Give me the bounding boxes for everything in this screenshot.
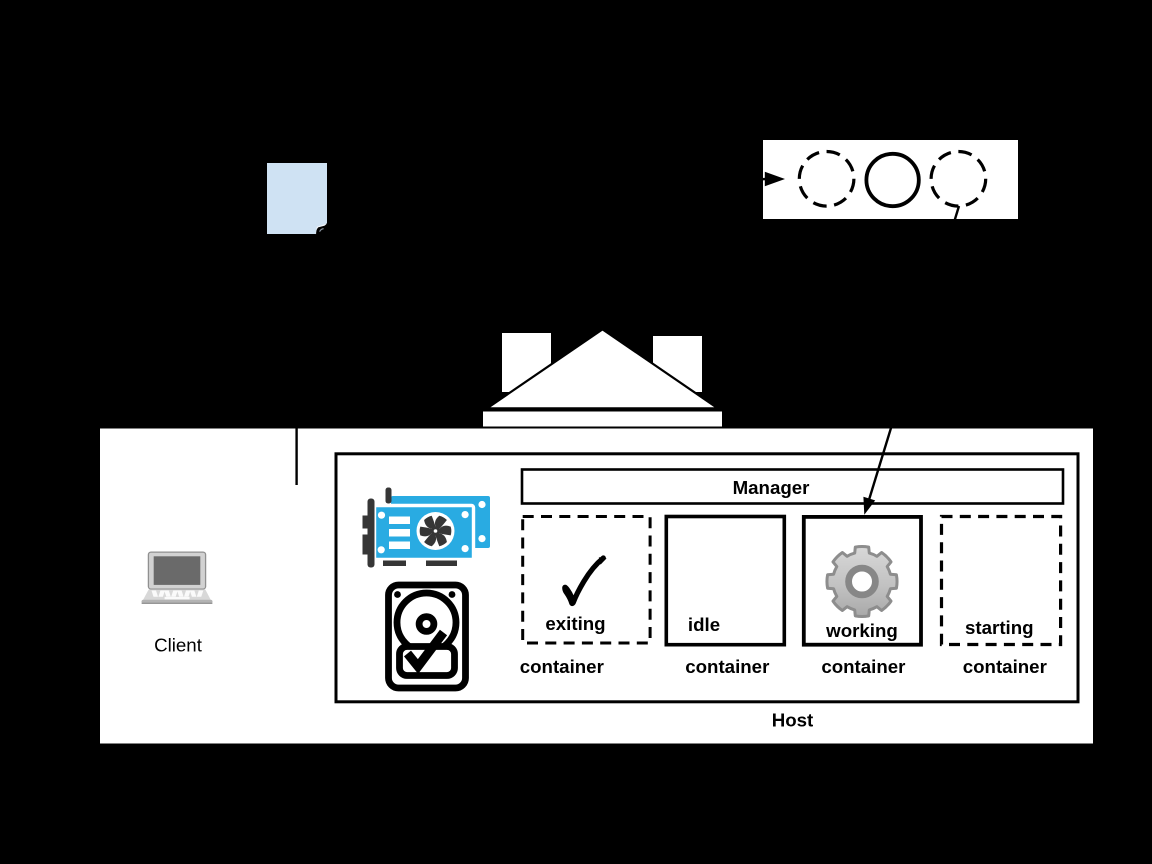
svg-text:container: container [821, 656, 905, 677]
svg-text:container: container [963, 656, 1047, 677]
svg-text:exiting: exiting [545, 613, 605, 634]
svg-text:working: working [825, 620, 898, 641]
svg-text:starting: starting [965, 617, 1034, 638]
svg-text:container: container [685, 656, 769, 677]
svg-text:container: container [520, 656, 604, 677]
svg-text:Client: Client [154, 634, 203, 655]
svg-text:idle: idle [688, 614, 720, 635]
svg-text:Manager: Manager [733, 477, 810, 498]
svg-text:Host: Host [772, 709, 814, 730]
